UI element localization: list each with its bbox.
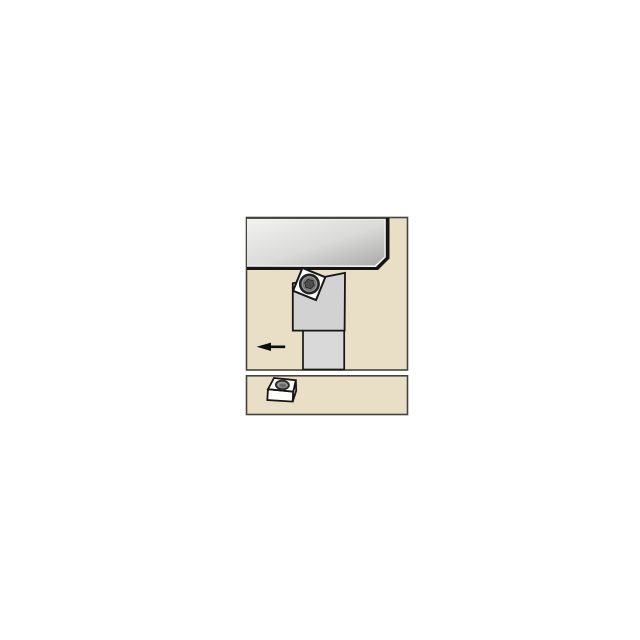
tooling-diagram — [0, 0, 640, 640]
tool-shank — [303, 331, 344, 370]
workpiece-face — [247, 220, 384, 266]
tooling-diagram-page — [0, 0, 640, 640]
insert-screw-socket — [305, 279, 314, 288]
